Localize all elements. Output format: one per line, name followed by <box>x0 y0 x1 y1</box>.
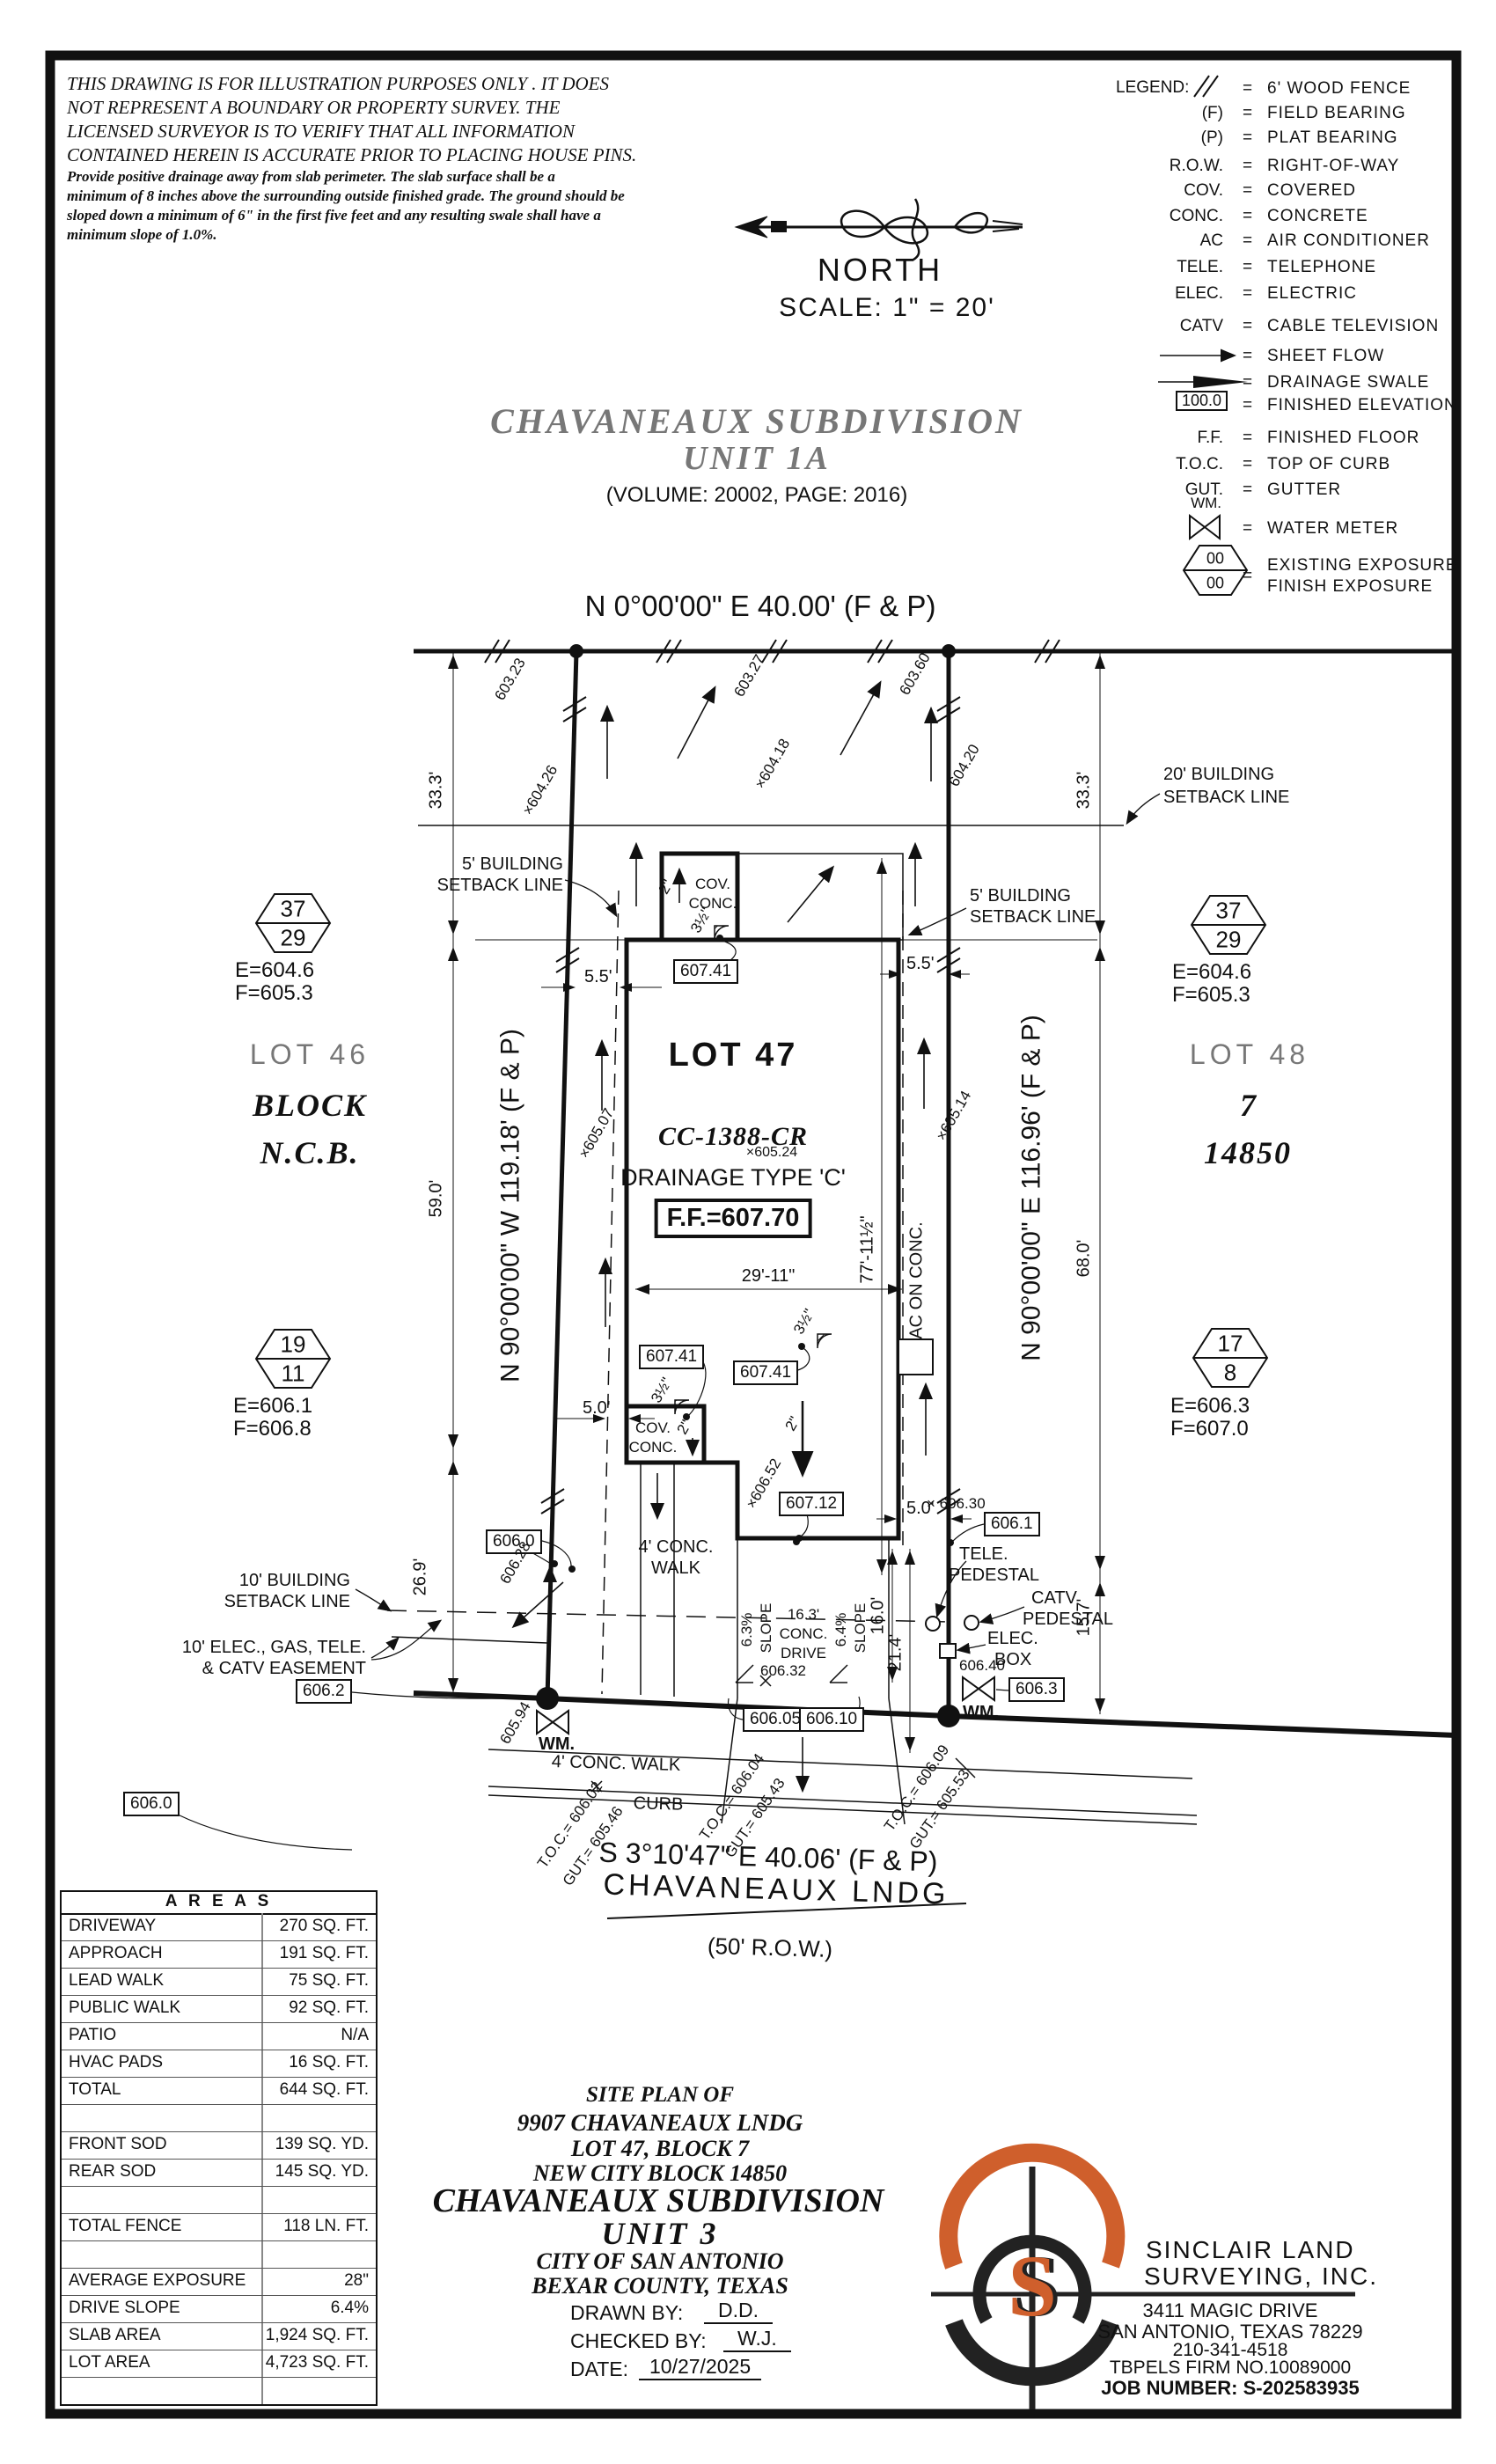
elev-box-607-41: 607.41 <box>733 1360 798 1385</box>
area-row-value: 16 SQ. FT. <box>289 2053 369 2072</box>
conc-walk-label: WALK <box>651 1559 700 1578</box>
firm-job-number: JOB NUMBER: S-202583935 <box>1101 2378 1359 2398</box>
legend-eq: = <box>1243 104 1253 123</box>
dim-29-11: 29'-11" <box>742 1267 796 1286</box>
date-value: 10/27/2025 <box>639 2356 761 2380</box>
firm-name: SINCLAIR LAND <box>1146 2237 1355 2262</box>
legend-eq: = <box>1243 347 1253 366</box>
area-row-value: 270 SQ. FT. <box>280 1917 369 1936</box>
drawn-by-label: DRAWN BY: <box>570 2302 683 2323</box>
finish-elev: F=607.0 <box>1170 1418 1249 1440</box>
area-row-value: 145 SQ. YD. <box>275 2162 369 2182</box>
subdivision-title: CHAVANEAUX SUBDIVISION <box>490 403 1023 440</box>
cov-conc-label: COV. <box>695 876 730 892</box>
lot-boundary-lines <box>414 651 1456 1735</box>
site-lot-block: LOT 47, BLOCK 7 <box>571 2137 749 2160</box>
area-row-label: TOTAL FENCE <box>69 2217 181 2236</box>
legend-abbr: CONC. <box>1170 207 1223 226</box>
wm-label: WM. <box>963 1704 999 1722</box>
cov-conc-label: CONC. <box>629 1440 678 1456</box>
disclaimer-line: LICENSED SURVEYOR IS TO VERIFY THAT ALL … <box>67 120 648 143</box>
catv-pedestal-icon <box>964 1616 979 1630</box>
drainage-type: DRAINAGE TYPE 'C' <box>620 1165 846 1190</box>
water-meter-legend-icon <box>1190 516 1220 539</box>
legend-eq: = <box>1243 567 1253 586</box>
lot48-label: LOT 48 <box>1190 1040 1309 1070</box>
dim-33-3: 33.3' <box>1075 772 1094 810</box>
slope-value: 6.4% <box>833 1613 849 1647</box>
legend-def: RIGHT-OF-WAY <box>1267 157 1399 176</box>
legend-abbr: (P) <box>1201 128 1223 148</box>
dim-68-0: 68.0' <box>1075 1240 1094 1278</box>
legend-def: TOP OF CURB <box>1267 455 1390 474</box>
checked-by-label: CHECKED BY: <box>570 2330 707 2351</box>
hex-top: 37 <box>281 897 306 920</box>
dim-5-0: 5.0' <box>583 1399 611 1418</box>
setback5-left-label: 5' BUILDING <box>462 855 563 874</box>
dim-16-0: 16.0' <box>869 1597 888 1635</box>
area-row-label: PATIO <box>69 2026 116 2045</box>
legend-def: TELEPHONE <box>1267 258 1376 277</box>
elev-box-606-3: 606.3 <box>1008 1677 1065 1702</box>
elev-box-607-41: 607.41 <box>673 959 738 984</box>
dim-15-7: 15.7' <box>1075 1599 1094 1637</box>
area-row-value: 118 LN. FT. <box>283 2217 369 2236</box>
logo-letter: S <box>1008 2235 1057 2336</box>
slope-word: SLOPE <box>759 1603 774 1654</box>
fence-symbol-icon <box>1194 76 1218 97</box>
electric-box-icon <box>940 1644 956 1658</box>
legend-eq: = <box>1243 429 1253 448</box>
disclaimer-line: Provide positive drainage away from slab… <box>67 167 648 187</box>
site-subdivision: CHAVANEAUX SUBDIVISION <box>433 2184 884 2219</box>
existing-elev: E=606.1 <box>233 1395 312 1417</box>
lot46-label: LOT 46 <box>250 1040 370 1070</box>
firm-name: SURVEYING, INC. <box>1144 2263 1378 2289</box>
legend-eq: = <box>1243 128 1253 148</box>
legend-def: CONCRETE <box>1267 207 1368 226</box>
site-unit: UNIT 3 <box>602 2218 719 2251</box>
legend-def: FINISHED FLOOR <box>1267 429 1419 448</box>
finish-elev: F=605.3 <box>1172 984 1250 1006</box>
area-row-label: APPROACH <box>69 1944 163 1963</box>
existing-elev: E=604.6 <box>235 959 314 981</box>
scale-label: SCALE: 1" = 20' <box>779 294 995 322</box>
legend-abbr: WM. <box>1191 495 1221 512</box>
drainage-swale-icon <box>1193 376 1248 388</box>
north-arrow-icon <box>736 199 1023 260</box>
firm-tbpels: TBPELS FIRM NO.10089000 <box>1110 2358 1351 2378</box>
bearing-west: N 90°00'00" W 119.18' (F & P) <box>496 1029 524 1382</box>
slope-word: SLOPE <box>853 1603 869 1654</box>
legend-def: WATER METER <box>1267 519 1398 539</box>
cov-conc-label: CONC. <box>689 896 737 912</box>
legend-eq: = <box>1243 231 1253 251</box>
dim-77-11: 77'-11½" <box>859 1215 877 1283</box>
hex-bottom: 8 <box>1224 1360 1236 1384</box>
area-row-value: 1,924 SQ. FT. <box>266 2326 369 2345</box>
legend-def: FIELD BEARING <box>1267 104 1406 123</box>
elev-box-606-1: 606.1 <box>984 1512 1040 1536</box>
catv-pedestal-label: PEDESTAL <box>1023 1610 1113 1629</box>
legend-eq: = <box>1243 373 1253 392</box>
setback5-right-label: SETBACK LINE <box>970 908 1096 927</box>
area-row-label: PUBLIC WALK <box>69 1998 180 2018</box>
setback10-label: 10' BUILDING <box>239 1572 350 1590</box>
disclaimer-line: NOT REPRESENT A BOUNDARY OR PROPERTY SUR… <box>67 96 648 120</box>
ac-on-conc-label: AC ON CONC. <box>908 1221 927 1338</box>
area-row-value: 6.4% <box>331 2299 369 2318</box>
area-row-value: 4,723 SQ. FT. <box>266 2353 369 2372</box>
legend-eq: = <box>1243 207 1253 226</box>
siteplan-title: SITE PLAN OF <box>586 2084 734 2107</box>
legend-def: GUTTER <box>1267 480 1341 500</box>
finish-elev: F=606.8 <box>233 1418 312 1440</box>
street-row: (50' R.O.W.) <box>708 1934 833 1962</box>
disclaimer-line: minimum of 8 inches above the surroundin… <box>67 187 648 206</box>
legend-eq: = <box>1243 284 1253 304</box>
area-row-value: 28" <box>344 2271 369 2291</box>
ncb-number: 14850 <box>1204 1137 1292 1170</box>
legend-title: LEGEND: <box>1116 79 1189 97</box>
conc-walk-label: 4' CONC. <box>639 1538 714 1557</box>
area-row-label: DRIVE SLOPE <box>69 2299 180 2318</box>
block-number: 7 <box>1240 1089 1256 1123</box>
telephone-pedestal-icon <box>926 1617 940 1631</box>
disclaimer-note: THIS DRAWING IS FOR ILLUSTRATION PURPOSE… <box>67 72 648 245</box>
areas-table: A R E A S DRIVEWAY 270 SQ. FT. APPROACH … <box>60 1890 378 2406</box>
tele-pedestal-label: TELE. <box>959 1545 1008 1564</box>
bearing-north: N 0°00'00" E 40.00' (F & P) <box>585 591 936 622</box>
area-row-value: 139 SQ. YD. <box>275 2135 369 2154</box>
area-row-value: 75 SQ. FT. <box>289 1971 369 1991</box>
legend-eq: = <box>1243 480 1253 500</box>
legend-eq: = <box>1243 181 1253 201</box>
water-meter-icon <box>537 1711 568 1734</box>
dim-5-5: 5.5' <box>906 955 935 973</box>
hex-top: 19 <box>281 1332 306 1356</box>
legend-abbr: F.F. <box>1197 429 1223 448</box>
spot-elevation: 606.32 <box>760 1663 806 1679</box>
spot-elevation: 606.40 <box>959 1658 1005 1674</box>
elec-box-label: ELEC. <box>987 1630 1038 1648</box>
legend-abbr: R.O.W. <box>1170 157 1223 176</box>
block-label: BLOCK <box>253 1089 367 1123</box>
area-row-label: DRIVEWAY <box>69 1917 156 1936</box>
north-label: NORTH <box>818 253 942 287</box>
volume-page: (VOLUME: 20002, PAGE: 2016) <box>606 484 907 506</box>
subdivision-unit: UNIT 1A <box>683 442 831 477</box>
wm-label: WM. <box>539 1735 575 1754</box>
setback10-label: SETBACK LINE <box>224 1593 350 1611</box>
legend-abbr: ELEC. <box>1175 284 1223 304</box>
house-footprint <box>627 854 933 1538</box>
legend-abbr: AC <box>1200 231 1223 251</box>
elev-box-606-0: 606.0 <box>123 1792 180 1816</box>
legend-eq: = <box>1243 519 1253 539</box>
elev-box-606-05: 606.05 <box>743 1707 808 1732</box>
firm-address: SAN ANTONIO, TEXAS 78229 <box>1097 2321 1362 2342</box>
disclaimer-line: sloped down a minimum of 6" in the first… <box>67 206 648 225</box>
site-city: CITY OF SAN ANTONIO <box>537 2249 784 2273</box>
exposure-top: 00 <box>1206 551 1224 568</box>
site-plan-page: THIS DRAWING IS FOR ILLUSTRATION PURPOSE… <box>0 0 1496 2464</box>
area-row-label: REAR SOD <box>69 2162 156 2182</box>
bearing-east: N 90°00'00" E 116.96' (F & P) <box>1017 1015 1045 1361</box>
dim-59-0: 59.0' <box>428 1180 446 1218</box>
drive-label: 16.3' <box>788 1607 819 1623</box>
legend-def: 6' WOOD FENCE <box>1267 79 1411 99</box>
legend-def: DRAINAGE SWALE <box>1267 373 1429 392</box>
lot47-label: LOT 47 <box>669 1038 798 1074</box>
water-meter-icon <box>963 1677 994 1700</box>
finished-elevation-symbol: 100.0 <box>1176 391 1228 411</box>
existing-elev: E=606.3 <box>1170 1395 1250 1417</box>
site-address: 9907 CHAVANEAUX LNDG <box>517 2110 803 2135</box>
hex-top: 37 <box>1216 898 1242 922</box>
firm-address: 3411 MAGIC DRIVE <box>1143 2300 1318 2321</box>
site-county: BEXAR COUNTY, TEXAS <box>532 2274 788 2298</box>
legend-eq: = <box>1243 396 1253 415</box>
hex-top: 17 <box>1218 1331 1243 1355</box>
area-row-label: FRONT SOD <box>69 2135 167 2154</box>
area-row-value: N/A <box>341 2026 369 2045</box>
exposure-bottom: 00 <box>1206 576 1224 592</box>
legend-eq: = <box>1243 317 1253 336</box>
easement-label: 10' ELEC., GAS, TELE. <box>182 1639 366 1657</box>
legend-abbr: COV. <box>1184 181 1223 201</box>
elev-box-607-41: 607.41 <box>639 1345 704 1369</box>
areas-title: A R E A S <box>62 1892 376 1915</box>
dim-21-4: 21.4' <box>887 1634 906 1672</box>
street-walk-label: 4' CONC. WALK <box>552 1753 681 1775</box>
legend-def: PLAT BEARING <box>1267 128 1398 148</box>
elev-box-606-10: 606.10 <box>799 1707 864 1732</box>
hex-bottom: 29 <box>281 926 306 950</box>
area-row-label: AVERAGE EXPOSURE <box>69 2271 246 2291</box>
legend-def: ELECTRIC <box>1267 284 1357 304</box>
drawn-by-value: D.D. <box>704 2299 773 2324</box>
legend-abbr: TELE. <box>1177 258 1223 277</box>
checked-by-value: W.J. <box>723 2328 791 2352</box>
legend-def: AIR CONDITIONER <box>1267 231 1430 251</box>
legend-def: COVERED <box>1267 181 1356 201</box>
legend-def: EXISTING EXPOSURE <box>1267 556 1458 576</box>
spot-elevation: × 606.30 <box>927 1496 986 1512</box>
drive-label: DRIVE <box>781 1646 826 1661</box>
area-row-label: LEAD WALK <box>69 1971 164 1991</box>
area-row-label: TOTAL <box>69 2080 121 2100</box>
easement-label: & CATV EASEMENT <box>202 1660 366 1678</box>
legend-def: FINISHED ELEVATION <box>1267 396 1457 415</box>
disclaimer-line: CONTAINED HEREIN IS ACCURATE PRIOR TO PL… <box>67 143 648 167</box>
spot-elevation: ×605.24 <box>746 1146 797 1161</box>
dim-5-5: 5.5' <box>584 968 612 986</box>
hex-bottom: 29 <box>1216 928 1242 951</box>
legend-def: CABLE TELEVISION <box>1267 317 1439 336</box>
disclaimer-line: minimum slope of 1.0%. <box>67 225 648 245</box>
curb-label: CURB <box>633 1794 683 1815</box>
elev-box-606-2: 606.2 <box>296 1679 352 1704</box>
dim-33-3: 33.3' <box>428 772 446 810</box>
area-row-label: SLAB AREA <box>69 2326 161 2345</box>
area-row-value: 191 SQ. FT. <box>280 1944 369 1963</box>
legend-abbr: (F) <box>1202 104 1223 123</box>
date-label: DATE: <box>570 2358 628 2380</box>
slope-value: 6.3% <box>739 1613 755 1647</box>
hex-bottom: 11 <box>282 1361 305 1385</box>
legend-eq: = <box>1243 157 1253 176</box>
legend-def: FINISH EXPOSURE <box>1267 577 1433 597</box>
tele-pedestal-label: PEDESTAL <box>949 1566 1039 1585</box>
legend-def: SHEET FLOW <box>1267 347 1384 366</box>
setback20-label: 20' BUILDING <box>1163 766 1274 784</box>
setback20-label: SETBACK LINE <box>1163 788 1289 807</box>
finish-elev: F=605.3 <box>235 982 313 1004</box>
legend-abbr: CATV <box>1180 317 1223 336</box>
finished-floor-value: F.F.=607.70 <box>655 1199 812 1238</box>
existing-elev: E=604.6 <box>1172 961 1251 983</box>
drive-label: CONC. <box>780 1626 828 1642</box>
elev-box-607-12: 607.12 <box>779 1492 844 1516</box>
area-row-value: 92 SQ. FT. <box>289 1998 369 2018</box>
cov-conc-label: COV. <box>635 1420 671 1436</box>
setback5-right-label: 5' BUILDING <box>970 887 1071 906</box>
area-row-value: 644 SQ. FT. <box>280 2080 369 2100</box>
dim-26-9: 26.9' <box>412 1558 430 1596</box>
ncb-label: N.C.B. <box>260 1137 359 1170</box>
setback5-left-label: SETBACK LINE <box>437 876 563 895</box>
legend-eq: = <box>1243 455 1253 474</box>
area-row-label: LOT AREA <box>69 2353 150 2372</box>
area-row-label: HVAC PADS <box>69 2053 163 2072</box>
legend-eq: = <box>1243 258 1253 277</box>
legend-abbr: T.O.C. <box>1176 455 1223 474</box>
disclaimer-line: THIS DRAWING IS FOR ILLUSTRATION PURPOSE… <box>67 72 648 96</box>
legend-eq: = <box>1243 79 1253 99</box>
catv-pedestal-label: CATV <box>1031 1589 1077 1608</box>
